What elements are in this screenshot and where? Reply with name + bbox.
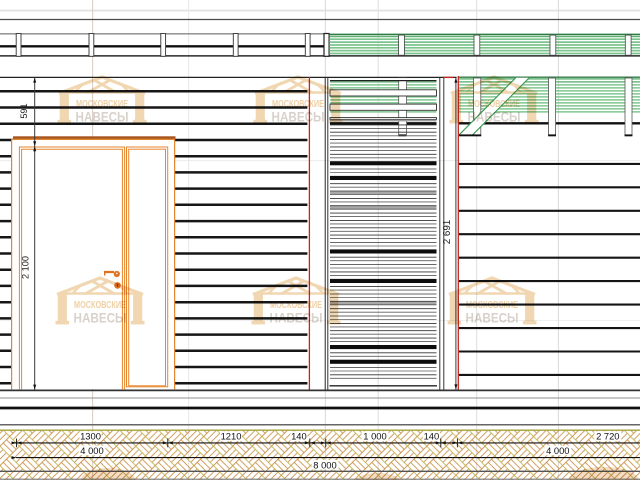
svg-text:1300: 1300 xyxy=(80,431,101,442)
svg-text:1 000: 1 000 xyxy=(363,431,386,442)
svg-text:8 000: 8 000 xyxy=(313,460,336,471)
svg-text:591: 591 xyxy=(19,103,29,118)
svg-text:140: 140 xyxy=(424,431,440,442)
svg-text:2 100: 2 100 xyxy=(21,256,31,279)
svg-text:4 000: 4 000 xyxy=(80,445,103,456)
svg-text:140: 140 xyxy=(291,431,307,442)
svg-text:2 691: 2 691 xyxy=(442,220,453,245)
svg-text:4 000: 4 000 xyxy=(546,445,569,456)
svg-text:2 720: 2 720 xyxy=(596,431,619,442)
svg-text:1210: 1210 xyxy=(221,431,242,442)
